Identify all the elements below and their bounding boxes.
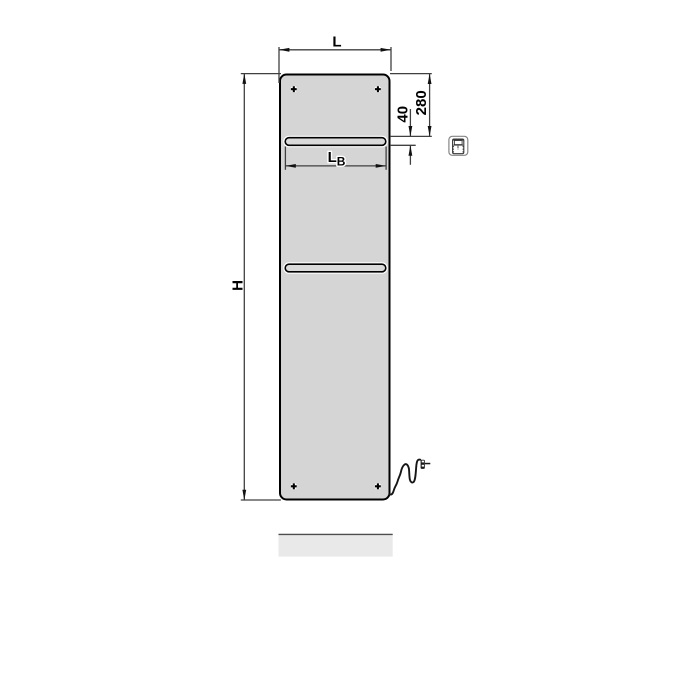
svg-text:L: L — [332, 33, 341, 50]
svg-text:H: H — [230, 280, 247, 291]
svg-text:280: 280 — [413, 90, 430, 115]
svg-text:40: 40 — [395, 106, 412, 123]
